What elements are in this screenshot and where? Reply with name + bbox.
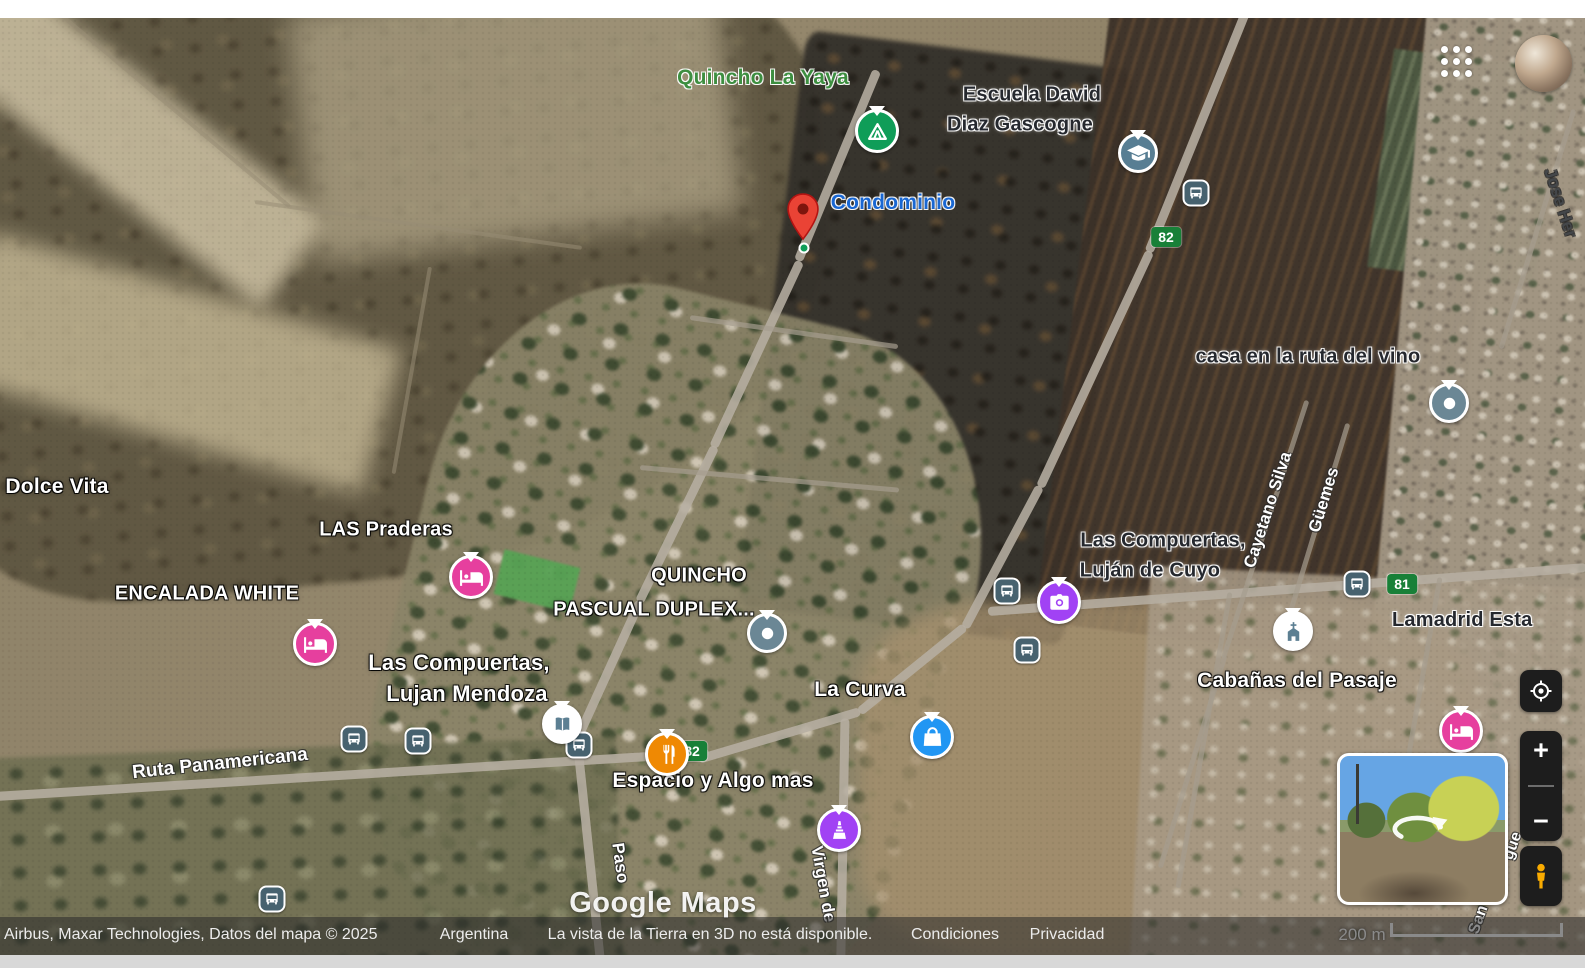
- locality-label-las-compuertas-line1[interactable]: Las Compuertas,: [368, 650, 550, 676]
- dirt-track: [255, 200, 582, 250]
- street-view-rotate-arrow-icon: [1390, 804, 1456, 842]
- poi-label-cabanas[interactable]: Cabañas del Pasaje: [1197, 669, 1397, 693]
- street-view-preview[interactable]: [1337, 753, 1508, 905]
- bus-stop-icon[interactable]: [994, 578, 1021, 605]
- road-minor: [1175, 592, 1232, 888]
- zoom-control: + −: [1520, 731, 1562, 841]
- poi-label-quincho-la-yaya[interactable]: Quincho La Yaya: [677, 66, 849, 90]
- bus-stop-icon[interactable]: [1014, 637, 1041, 664]
- poi-label-escuela-line1[interactable]: Escuela David: [963, 84, 1101, 107]
- bus-stop-icon[interactable]: [259, 886, 286, 913]
- poi-label-quincho-pascual-line1[interactable]: QUINCHO: [651, 565, 747, 588]
- locality-label-las-compuertas-line2[interactable]: Lujan Mendoza: [386, 681, 548, 707]
- street-label-guemes: Güemes: [1305, 465, 1344, 535]
- street-label-cayetano-silva: Cayetano Silva: [1240, 449, 1296, 570]
- google-maps-logo[interactable]: Google Maps: [569, 887, 757, 920]
- poi-label-condominio[interactable]: Condominio: [831, 191, 955, 215]
- pegman-icon: [1526, 861, 1556, 891]
- avatar[interactable]: [1515, 35, 1572, 92]
- poi-label-escuela-line2[interactable]: Diaz Gascogne: [947, 114, 1093, 137]
- road-minor: [640, 465, 899, 493]
- dirt-track: [392, 267, 432, 475]
- zoom-in-button[interactable]: +: [1520, 737, 1562, 764]
- google-maps-satellite-canvas[interactable]: Ruta Panamericana Paso Virgen de Cayetan…: [0, 18, 1585, 968]
- poi-label-las-praderas[interactable]: LAS Praderas: [319, 519, 453, 542]
- road-minor: [690, 315, 899, 349]
- region-label: Argentina: [440, 926, 509, 944]
- terms-link[interactable]: Condiciones: [911, 926, 999, 944]
- pegman-button[interactable]: [1520, 846, 1562, 906]
- poi-label-dolce-vita[interactable]: Dolce Vita: [5, 475, 108, 499]
- satellite-open-field: [286, 18, 743, 263]
- route-shield-82: 82: [1151, 227, 1181, 247]
- imagery-attribution: Airbus, Maxar Technologies, Datos del ma…: [4, 926, 377, 944]
- poi-label-casa-ruta-vino[interactable]: casa en la ruta del vino: [1196, 346, 1421, 369]
- dirt-track: [59, 18, 291, 208]
- street-label-virgen: Virgen de: [806, 844, 839, 923]
- street-label-paso: Paso: [607, 841, 632, 884]
- poi-label-encalada-white[interactable]: ENCALADA WHITE: [115, 583, 299, 606]
- road-route-82: [1036, 250, 1154, 489]
- bottom-strip: [0, 955, 1585, 968]
- destination-pin[interactable]: [787, 193, 819, 246]
- street-view-pole: [1356, 764, 1359, 824]
- poi-label-lamadrid[interactable]: Lamadrid Esta: [1392, 609, 1532, 632]
- poi-label-espacio[interactable]: Espacio y Algo mas: [612, 769, 813, 793]
- satellite-urban-blocks: [1361, 18, 1585, 777]
- my-location-button[interactable]: [1520, 670, 1562, 712]
- road-village: [709, 260, 804, 450]
- road-route-82: [1145, 18, 1253, 254]
- poi-label-la-curva[interactable]: La Curva: [814, 678, 905, 702]
- road-route-82: [698, 707, 862, 763]
- 3d-unavailable-notice: La vista de la Tierra en 3D no está disp…: [548, 926, 873, 944]
- privacy-link[interactable]: Privacidad: [1030, 926, 1105, 944]
- bus-stop-icon[interactable]: [1344, 571, 1371, 598]
- target-icon: [1529, 679, 1553, 703]
- bus-stop-icon[interactable]: [405, 728, 432, 755]
- road-ruta-panamericana: [0, 748, 709, 801]
- zoom-out-button[interactable]: −: [1520, 808, 1562, 835]
- satellite-dry-wash: [0, 232, 402, 495]
- bus-stop-icon[interactable]: [341, 726, 368, 753]
- zoom-divider: [1528, 785, 1554, 787]
- locality-label-cuyo-line1[interactable]: Las Compuertas,: [1080, 530, 1245, 553]
- poi-label-quincho-pascual-line2[interactable]: PASCUAL DUPLEX...: [553, 599, 755, 622]
- satellite-dry-wash: [0, 18, 328, 309]
- bus-stop-icon[interactable]: [1183, 180, 1210, 207]
- locality-label-cuyo-line2[interactable]: Luján de Cuyo: [1080, 560, 1220, 583]
- route-shield-81: 81: [1387, 574, 1417, 594]
- apps-grid-icon[interactable]: [1441, 46, 1475, 80]
